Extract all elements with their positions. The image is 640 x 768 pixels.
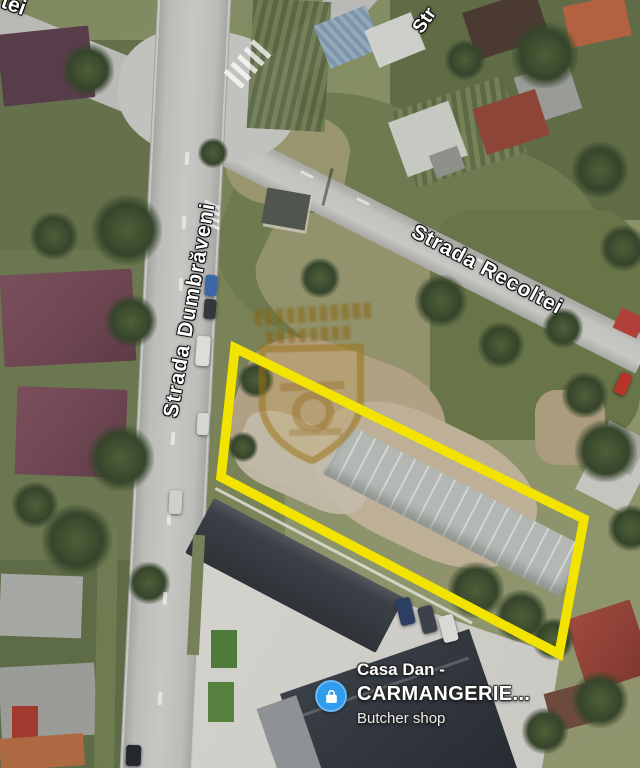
place-category: Butcher shop: [357, 710, 530, 727]
tree: [608, 505, 640, 551]
tree: [198, 138, 228, 168]
tree: [512, 22, 578, 88]
vehicle: [126, 745, 142, 767]
lane-dash: [185, 152, 190, 165]
hedge-square: [208, 682, 234, 722]
place-label-casa-dan[interactable]: Casa Dan - CARMANGERIE... Butcher shop: [315, 660, 530, 727]
lane-dash: [158, 692, 163, 705]
tree: [92, 195, 162, 265]
place-name-line1: Casa Dan -: [357, 660, 530, 680]
watermark: [240, 300, 390, 465]
tree: [105, 295, 157, 347]
vehicle: [203, 299, 216, 320]
shed-ruin: [261, 187, 311, 230]
shopping-bag-icon[interactable]: [315, 680, 347, 712]
tree: [445, 40, 485, 80]
house-roof: [0, 733, 85, 768]
tree: [88, 425, 154, 491]
tree: [562, 372, 608, 418]
vehicle: [168, 490, 182, 515]
place-name-line2: CARMANGERIE...: [357, 683, 530, 706]
satellite-map[interactable]: Strada Dumbrăveni Strada Recoltei Str te…: [0, 0, 640, 768]
tree: [478, 322, 524, 368]
tree: [532, 618, 574, 660]
watermark-shield: [234, 333, 396, 473]
tree: [575, 420, 637, 482]
tree: [30, 212, 78, 260]
tree: [300, 258, 340, 298]
tree: [600, 225, 640, 271]
hedge-square: [211, 630, 237, 668]
tree: [572, 142, 628, 198]
house-roof: [0, 574, 83, 639]
lane-dash: [163, 592, 168, 605]
lane-dash: [167, 512, 172, 525]
tree: [12, 482, 58, 528]
lane-dash: [182, 216, 187, 229]
vehicle: [196, 413, 209, 436]
house-roof: [12, 706, 38, 738]
tree: [572, 672, 628, 728]
tree: [415, 275, 467, 327]
tree: [62, 44, 114, 96]
lane-dash: [171, 432, 176, 445]
vehicle: [195, 336, 211, 367]
place-label-text: Casa Dan - CARMANGERIE... Butcher shop: [357, 660, 530, 727]
